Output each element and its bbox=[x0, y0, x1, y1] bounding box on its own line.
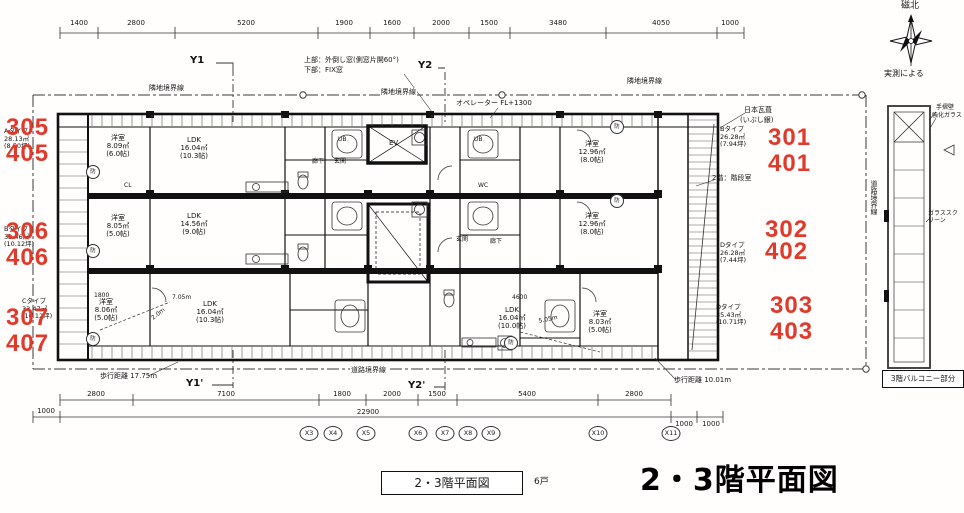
boundary-label-top-right: 隣地境界線 bbox=[626, 77, 663, 85]
boundary-label-bottom: 道路境界線 bbox=[350, 366, 387, 374]
compass-north-label: 磁北 bbox=[901, 2, 919, 10]
dim-top-1: 1400 bbox=[70, 19, 88, 27]
bath-label: UB bbox=[474, 136, 483, 143]
entrance-label: 玄関 bbox=[334, 158, 346, 165]
unit-type-303: Dタイプ35.43㎡(10.71坪) bbox=[716, 304, 746, 327]
room-label: LDK14.56㎡(9.0帖) bbox=[160, 212, 228, 236]
dim-top-2: 2800 bbox=[127, 19, 145, 27]
boundary-label-top-mid: 隣地境界線 bbox=[380, 88, 417, 96]
unit-number-405: 405 bbox=[6, 142, 49, 166]
window-note-bottom: 下部：FIX窓 bbox=[304, 66, 343, 74]
unit-type-301: Bタイプ26.28㎡(7.94坪) bbox=[720, 126, 746, 149]
unit-number-301: 301 bbox=[768, 126, 811, 150]
fire-equipment-mark: 防 bbox=[86, 244, 100, 258]
room-label: 洋室8.09㎡(6.0帖) bbox=[84, 134, 152, 158]
dim-top-7: 1500 bbox=[480, 19, 498, 27]
room-label: 洋室12.96㎡(8.0帖) bbox=[558, 140, 626, 164]
section-marker-y1-prime: Y1' bbox=[186, 378, 203, 389]
section-lines bbox=[212, 63, 445, 390]
grid-bubble-x10: X10 bbox=[589, 426, 608, 441]
grid-bubble-x7: X7 bbox=[436, 426, 455, 441]
corridor-label: 廊下 bbox=[312, 158, 324, 165]
dim-top-8: 3480 bbox=[549, 19, 567, 27]
dim-bot-6: 5400 bbox=[518, 390, 536, 398]
unit-number-403: 403 bbox=[770, 320, 813, 344]
section-marker-y2-prime: Y2' bbox=[408, 380, 425, 391]
unit-number-402: 402 bbox=[765, 240, 808, 264]
bath-label: UB bbox=[338, 136, 347, 143]
dim-right-end-1: 1000 bbox=[675, 420, 693, 428]
grid-bubble-x6: X6 bbox=[409, 426, 428, 441]
unit-count-note: 6戸 bbox=[534, 478, 549, 486]
fire-equipment-mark: 防 bbox=[86, 165, 100, 179]
unit-number-401: 401 bbox=[768, 152, 811, 176]
dim-bot-4: 2000 bbox=[383, 390, 401, 398]
section-marker-y1: Y1 bbox=[190, 55, 204, 66]
unit-number-306: 306 bbox=[6, 220, 49, 244]
grid-bubble-x4: X4 bbox=[324, 426, 343, 441]
unit-number-406: 406 bbox=[6, 246, 49, 270]
walking-distance-left: 歩行距離 17.75m bbox=[100, 372, 157, 380]
handrail-note-2: 強化ガラス bbox=[932, 112, 962, 119]
interior-dim: 1800 bbox=[94, 292, 109, 299]
dim-bot-7: 2800 bbox=[625, 390, 643, 398]
grid-bubble-x11: X11 bbox=[662, 426, 681, 441]
dim-top-3: 5200 bbox=[237, 19, 255, 27]
boundary-label-right: 道路境界線 bbox=[869, 180, 879, 215]
roof-material-note: 日本瓦葺 bbox=[744, 106, 772, 114]
dim-bot-total: 22900 bbox=[357, 408, 379, 416]
dim-right-end-2: 1000 bbox=[702, 420, 720, 428]
boundary-label-top-left: 隣地境界線 bbox=[148, 84, 185, 92]
grid-bubble-x8: X8 bbox=[459, 426, 478, 441]
fire-equipment-mark: 防 bbox=[86, 332, 100, 346]
unit-number-407: 407 bbox=[6, 332, 49, 356]
page-title: 2・3階平面図 bbox=[640, 455, 839, 499]
dim-bot-5: 1500 bbox=[428, 390, 446, 398]
entrance-label: 玄関 bbox=[456, 236, 468, 243]
compass-survey-label: 実測による bbox=[884, 70, 924, 78]
room-label: 洋室8.03㎡(5.0帖) bbox=[566, 310, 634, 334]
dim-top-10: 1000 bbox=[721, 19, 739, 27]
room-label: 洋室12.96㎡(8.0帖) bbox=[558, 212, 626, 236]
unit-number-305: 305 bbox=[6, 116, 49, 140]
floor-plan-page: 1400 2800 5200 1900 1600 2000 1500 3480 … bbox=[0, 0, 964, 513]
dim-bot-1: 2800 bbox=[87, 390, 105, 398]
glass-screen-note: ガラススクリーン bbox=[928, 210, 962, 224]
dim-top-4: 1900 bbox=[335, 19, 353, 27]
dim-top-9: 4050 bbox=[652, 19, 670, 27]
grid-bubble-x9: X9 bbox=[482, 426, 501, 441]
fire-equipment-mark: 防 bbox=[610, 194, 624, 208]
fire-equipment-mark: 防 bbox=[610, 120, 624, 134]
wc-label: WC bbox=[478, 182, 488, 189]
elevator-label: EV bbox=[389, 139, 398, 147]
grid-bubble-x3: X3 bbox=[300, 426, 319, 441]
section-marker-y2: Y2 bbox=[418, 60, 432, 71]
dim-top-6: 2000 bbox=[432, 19, 450, 27]
north-arrow-icon bbox=[890, 14, 932, 66]
balcony-inset bbox=[884, 106, 954, 368]
room-label: LDK16.04㎡(10.0帖) bbox=[478, 306, 546, 330]
unit-number-307: 307 bbox=[6, 306, 49, 330]
room-label: LDK16.04㎡(10.3帖) bbox=[160, 136, 228, 160]
operator-note: オペレーター FL+1300 bbox=[456, 99, 532, 107]
walk-segment-dim: 7.05m bbox=[172, 294, 191, 301]
room-label: 洋室8.06㎡(5.0帖) bbox=[72, 298, 140, 322]
fire-equipment-mark: 防 bbox=[504, 336, 518, 350]
unit-type-302: Dタイプ26.28㎡(7.44坪) bbox=[720, 242, 746, 265]
interior-dim: 4600 bbox=[512, 294, 527, 301]
closet-label: CL bbox=[124, 182, 132, 189]
dim-left-end: 1000 bbox=[37, 407, 55, 415]
corridor-label: 廊下 bbox=[490, 238, 502, 245]
room-label: LDK16.04㎡(10.3帖) bbox=[176, 300, 244, 324]
window-note-top: 上部：外倒し窓(側窓片開60°) bbox=[304, 56, 399, 64]
balcony-inset-caption: 3階バルコニー部分 bbox=[882, 370, 964, 388]
unit-number-303: 303 bbox=[770, 294, 813, 318]
dim-bot-3: 1800 bbox=[333, 390, 351, 398]
roof-finish-note: (いぶし銀) bbox=[740, 116, 773, 124]
stair-note: 2階：階段室 bbox=[712, 174, 751, 182]
handrail-note-1: 手摺壁 bbox=[936, 104, 954, 111]
grid-bubble-x5: X5 bbox=[357, 426, 376, 441]
drawing-title-box: 2・3階平面図 bbox=[381, 471, 523, 495]
dim-top-5: 1600 bbox=[383, 19, 401, 27]
dim-bot-2: 7100 bbox=[217, 390, 235, 398]
room-label: 洋室8.05㎡(5.0帖) bbox=[84, 214, 152, 238]
walking-distance-right: 歩行距離 10.01m bbox=[674, 376, 731, 384]
